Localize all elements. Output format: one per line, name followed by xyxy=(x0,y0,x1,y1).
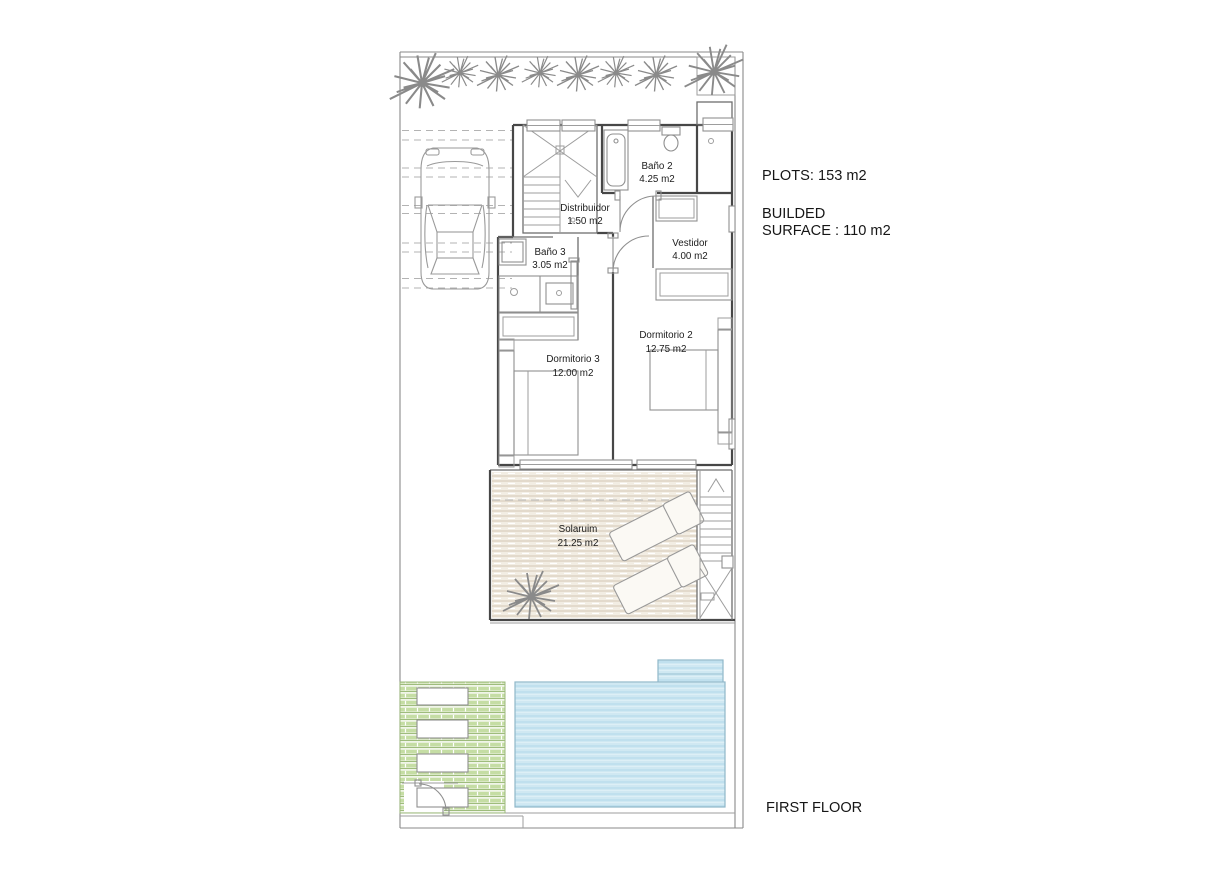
swimming-pool xyxy=(515,660,725,807)
toilet-icon xyxy=(662,127,680,135)
room-label: Dormitorio 3 xyxy=(546,354,600,365)
tree-icon xyxy=(557,56,599,92)
planter xyxy=(417,688,468,705)
room-area: 21.25 m2 xyxy=(558,538,599,549)
planter xyxy=(417,754,468,772)
planter xyxy=(417,720,468,738)
tree-icon xyxy=(522,56,558,87)
room-area: 12.00 m2 xyxy=(553,368,594,379)
drain-symbol xyxy=(709,139,714,144)
door-hall xyxy=(608,233,649,273)
room-area: 3.05 m2 xyxy=(532,260,567,271)
room-area: 4.00 m2 xyxy=(672,251,707,262)
pool-basin xyxy=(515,682,725,807)
room-area: 4.25 m2 xyxy=(639,174,674,185)
room-label: Distribuidor xyxy=(560,203,610,214)
room-label: Dormitorio 2 xyxy=(639,330,692,341)
room-label: Vestidor xyxy=(672,238,708,249)
tree-icon xyxy=(635,56,677,92)
tree-row xyxy=(390,45,744,109)
room-label: Solaruim xyxy=(559,524,598,535)
exterior-staircase xyxy=(700,470,733,620)
floor-title: FIRST FLOOR xyxy=(766,800,862,816)
plots-label: PLOTS: 153 m2 xyxy=(762,168,867,184)
solarium xyxy=(490,470,735,623)
wardrobe-icon xyxy=(656,269,732,300)
builded-label-line1: BUILDED xyxy=(762,206,825,222)
floor-plan-drawing: Baño 2 4.25 m2 Distribuidor 1.50 m2 Baño… xyxy=(0,0,1220,870)
door-bathroom2 xyxy=(615,191,661,232)
car-icon xyxy=(415,148,495,289)
tree-icon xyxy=(598,56,634,87)
garden-deck xyxy=(400,682,505,815)
room-area: 12.75 m2 xyxy=(646,344,687,355)
towel-radiator-icon xyxy=(571,261,577,309)
builded-label-line2: SURFACE : 110 m2 xyxy=(762,223,891,239)
floor-plan-page: Baño 2 4.25 m2 Distribuidor 1.50 m2 Baño… xyxy=(0,0,1220,870)
driveway-paving xyxy=(402,131,512,289)
tree-icon xyxy=(477,56,519,92)
annotations: PLOTS: 153 m2 BUILDED SURFACE : 110 m2 F… xyxy=(762,168,891,816)
room-label: Baño 2 xyxy=(641,161,672,172)
wardrobe-icon xyxy=(656,196,697,221)
room-label: Baño 3 xyxy=(534,247,566,258)
